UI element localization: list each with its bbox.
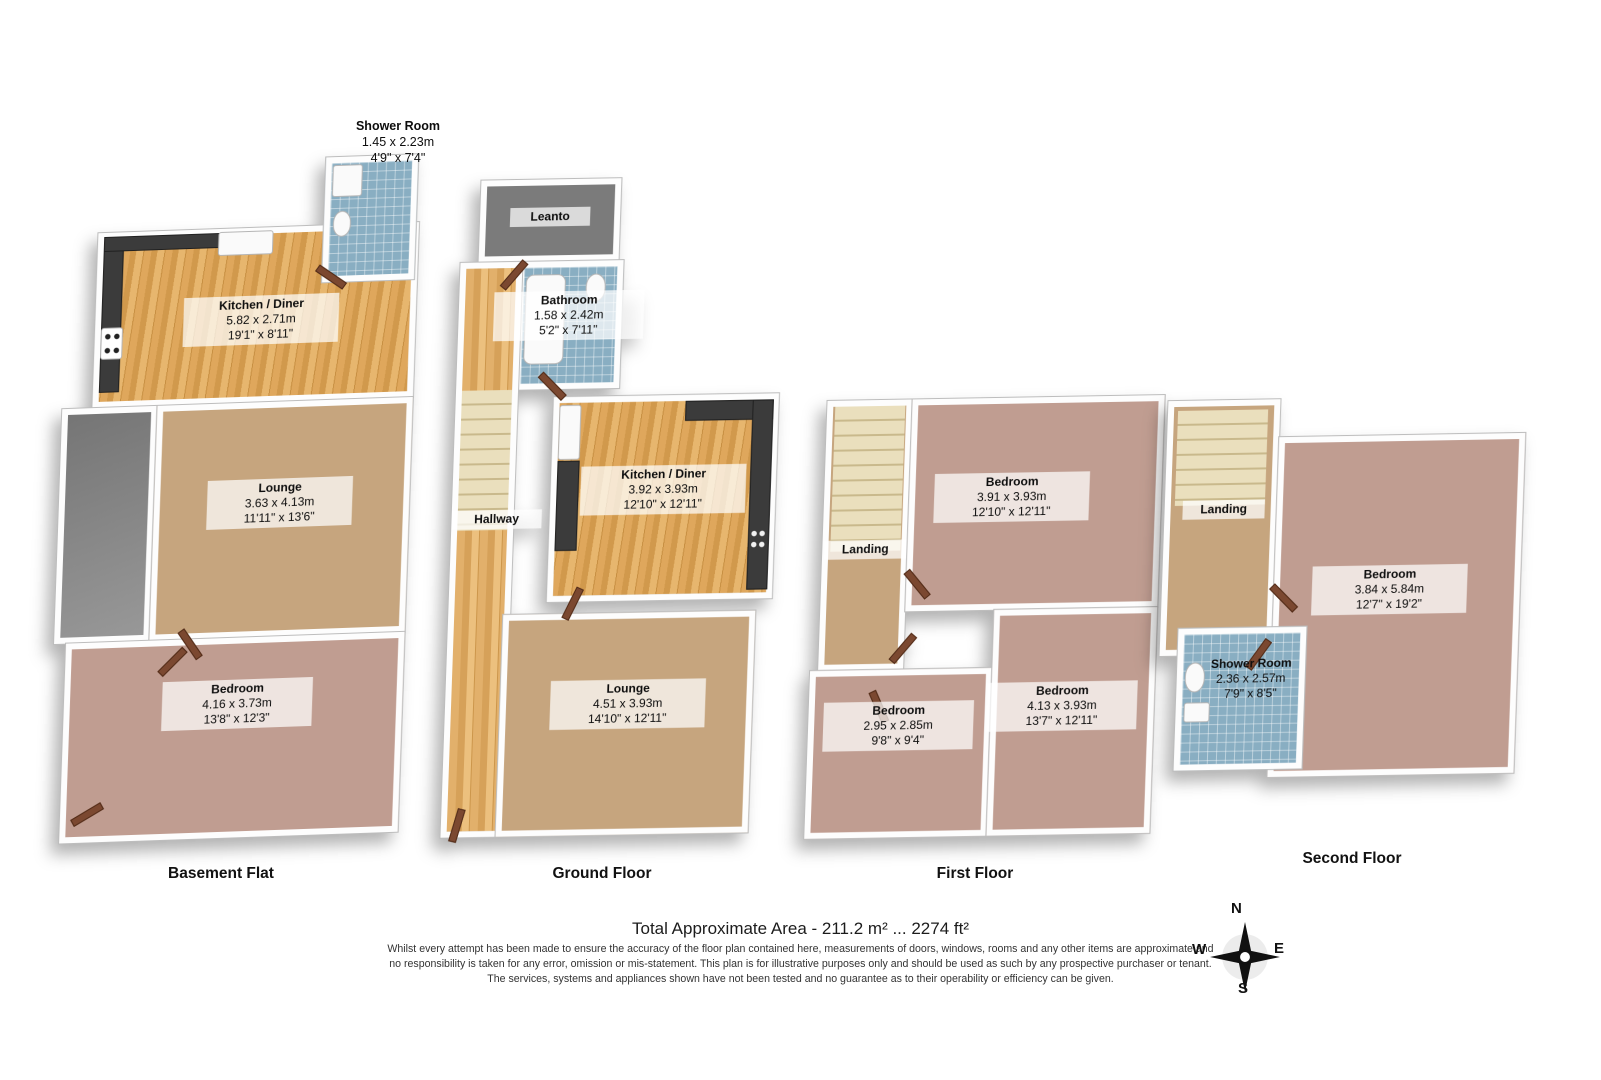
room-label-hallway: Hallway [451,509,542,530]
compass-north-label: N [1231,900,1242,917]
room-hall-void [54,406,157,644]
floorplan-basement: Kitchen / Diner 5.82 x 2.71m 19'1" x 8'1… [47,222,419,846]
floorplan-ground: Leanto Bathroom 1.58 x 2.42m 5'2" x 7'11… [440,175,793,841]
floorplan-first: Landing Bedroom 3.91 x 3.93m 12'10" x 12… [804,395,1168,839]
room-label-bedroom-3: Bedroom 4.13 x 3.93m 13'7" x 12'11" [986,680,1138,732]
disclaimer-line-2: no responsibility is taken for any error… [0,957,1601,972]
floor-title-basement: Basement Flat [111,865,331,883]
compass-east-label: E [1274,940,1284,957]
room-label-bedroom-1: Bedroom 3.91 x 3.93m 12'10" x 12'11" [933,471,1090,523]
room-bedroom [59,632,405,844]
room-label-shower: Shower Room 2.36 x 2.57m 7'9" x 8'5" [1170,653,1332,705]
room-label-lounge: Lounge 4.51 x 3.93m 14'10" x 12'11" [549,678,706,730]
room-label-bathroom: Bathroom 1.58 x 2.42m 5'2" x 7'11" [493,290,645,342]
room-label-landing: Landing [824,539,907,559]
room-label-lounge: Lounge 3.63 x 4.13m 11'11" x 13'6" [206,476,353,530]
sink-fixture [218,230,274,256]
floor-title-ground: Ground Floor [492,865,712,883]
room-label-bedroom: Bedroom 3.84 x 5.84m 12'7" x 19'2" [1311,564,1468,616]
cooker-icon [100,327,123,360]
floor-title-second: Second Floor [1242,850,1462,868]
floor-title-first: First Floor [865,865,1085,883]
compass: N W E S [1192,900,1302,1010]
room-label-kitchen: Kitchen / Diner 5.82 x 2.71m 19'1" x 8'1… [183,293,340,347]
room-label-kitchen: Kitchen / Diner 3.92 x 3.93m 12'10" x 12… [580,464,747,516]
floorplan-second: Landing Bedroom 3.84 x 5.84m 12'7" x 19'… [1155,395,1526,779]
staircase [830,406,905,552]
hob-icon [748,527,768,551]
kitchen-counter [554,461,579,551]
shower-tray-fixture [332,164,363,197]
room-label-shower-basement: Shower Room 1.45 x 2.23m 4'9" x 7'4" [318,118,478,166]
compass-west-label: W [1192,941,1206,958]
disclaimer-line-3: The services, systems and appliances sho… [0,972,1601,987]
disclaimer-line-1: Whilst every attempt has been made to en… [0,942,1601,957]
sink-fixture [1183,702,1210,722]
footer: Total Approximate Area - 211.2 m² ... 22… [0,919,1601,987]
room-bedroom-2 [804,668,992,839]
staircase [1175,409,1268,506]
compass-south-label: S [1238,980,1248,997]
room-label-landing: Landing [1182,499,1265,519]
total-area-text: Total Approximate Area - 211.2 m² ... 22… [0,919,1601,939]
room-label-bedroom-2: Bedroom 2.95 x 2.85m 9'8" x 9'4" [822,700,974,752]
floorplan-page: Kitchen / Diner 5.82 x 2.71m 19'1" x 8'1… [0,0,1601,1080]
room-label-bedroom: Bedroom 4.16 x 3.73m 13'8" x 12'3" [161,677,313,731]
room-label-leanto: Leanto [510,207,591,227]
sink-fixture [558,405,582,460]
